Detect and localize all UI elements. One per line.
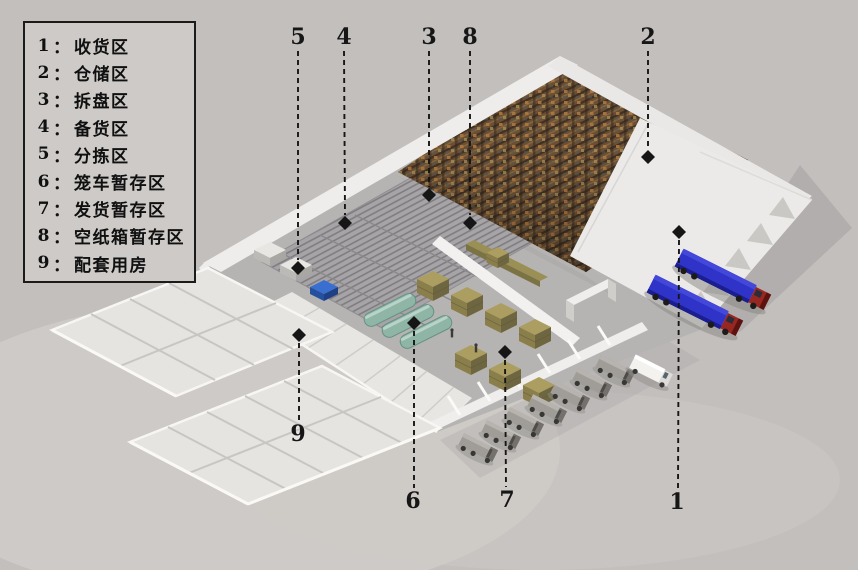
legend-item-number: 6 (37, 172, 50, 192)
legend-separator: ： (53, 115, 70, 140)
legend-item-2: 2：仓储区 (37, 59, 194, 86)
leader-line-1 (678, 240, 679, 489)
leader-line-4 (344, 51, 345, 215)
marker-diamond-1 (672, 225, 686, 239)
legend-separator: ： (53, 33, 70, 58)
legend-item-label: 配套用房 (74, 251, 148, 276)
marker-diamond-6 (407, 316, 421, 330)
legend-item-9: 9：配套用房 (37, 250, 194, 277)
legend-item-label: 收货区 (74, 33, 130, 58)
leader-line-7 (505, 360, 506, 487)
legend-item-5: 5：分拣区 (37, 141, 194, 168)
zone-number-label-1: 1 (669, 489, 684, 515)
marker-diamond-5 (291, 261, 305, 275)
legend-item-3: 3：拆盘区 (37, 86, 194, 113)
legend-item-7: 7：发货暂存区 (37, 195, 194, 222)
marker-diamond-8 (463, 216, 477, 230)
warehouse-layout-figure: 543829671 1：收货区2：仓储区3：拆盘区4：备货区5：分拣区6：笼车暂… (0, 0, 858, 570)
legend-item-1: 1：收货区 (37, 32, 194, 59)
legend-item-6: 6：笼车暂存区 (37, 168, 194, 195)
marker-diamond-4 (338, 216, 352, 230)
legend-item-number: 5 (37, 144, 50, 164)
legend-separator: ： (53, 196, 70, 221)
zone-number-label-4: 4 (336, 24, 351, 50)
zone-number-label-3: 3 (421, 24, 436, 50)
annotation-layer: 543829671 (290, 24, 686, 515)
legend-item-number: 1 (37, 36, 50, 56)
legend-item-label: 备货区 (74, 115, 130, 140)
zone-number-label-6: 6 (405, 488, 420, 514)
legend-item-4: 4：备货区 (37, 114, 194, 141)
legend-box: 1：收货区2：仓储区3：拆盘区4：备货区5：分拣区6：笼车暂存区7：发货暂存区8… (23, 21, 196, 283)
legend-item-number: 8 (37, 226, 50, 246)
legend-items: 1：收货区2：仓储区3：拆盘区4：备货区5：分拣区6：笼车暂存区7：发货暂存区8… (37, 32, 194, 277)
legend-separator: ： (53, 223, 70, 248)
legend-separator: ： (53, 60, 70, 85)
legend-item-number: 3 (37, 90, 50, 110)
legend-item-number: 2 (37, 63, 50, 83)
zone-number-label-9: 9 (290, 421, 305, 447)
zone-number-label-7: 7 (499, 487, 514, 513)
legend-separator: ： (53, 169, 70, 194)
marker-diamond-2 (641, 150, 655, 164)
legend-item-label: 发货暂存区 (74, 196, 167, 221)
legend-separator: ： (53, 142, 70, 167)
zone-number-label-2: 2 (640, 24, 655, 50)
zone-number-label-8: 8 (462, 24, 477, 50)
legend-item-8: 8：空纸箱暂存区 (37, 222, 194, 249)
marker-diamond-3 (422, 188, 436, 202)
legend-item-label: 拆盘区 (74, 87, 130, 112)
legend-item-label: 空纸箱暂存区 (74, 223, 185, 248)
legend-separator: ： (53, 251, 70, 276)
legend-separator: ： (53, 87, 70, 112)
legend-item-label: 分拣区 (74, 142, 130, 167)
legend-item-label: 仓储区 (74, 60, 130, 85)
marker-diamond-9 (292, 328, 306, 342)
legend-item-number: 4 (37, 117, 50, 137)
zone-number-label-5: 5 (290, 24, 305, 50)
marker-diamond-7 (498, 345, 512, 359)
legend-item-number: 7 (37, 199, 50, 219)
legend-item-number: 9 (37, 253, 50, 273)
legend-item-label: 笼车暂存区 (74, 169, 167, 194)
